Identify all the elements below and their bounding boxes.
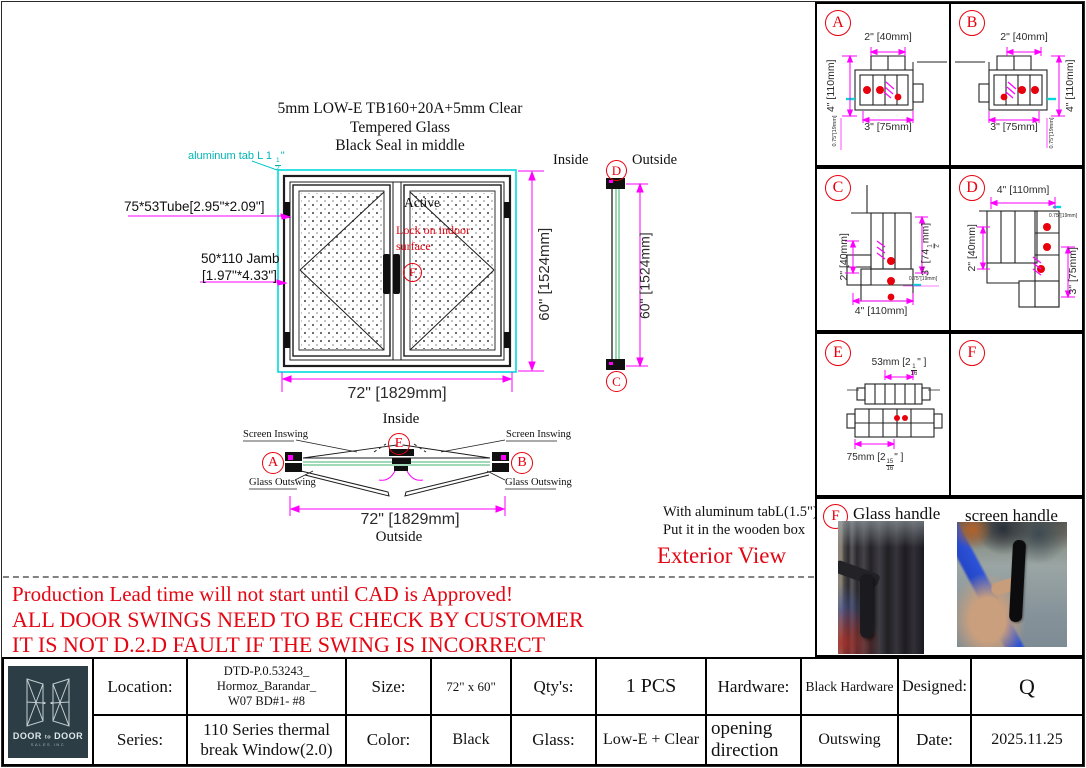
logo-doors-icon — [20, 676, 76, 728]
detail-a-dim-small: 0.75"[19mm] — [832, 113, 838, 149]
jamb-label-line1: 50*110 Jamb — [201, 251, 280, 267]
series-label: Series: — [92, 714, 186, 764]
left-sash-mesh — [301, 193, 383, 349]
glass-handle-photo — [838, 521, 924, 654]
detail-c-dim-bottom: 4" [110mm] — [850, 306, 912, 318]
opening-direction-label: opening direction — [705, 714, 800, 764]
exterior-view-title: Exterior View — [657, 543, 786, 569]
active-sash-label: Active — [404, 195, 440, 211]
side-outside-label: Outside — [632, 152, 677, 169]
plan-marker-e: E — [388, 433, 410, 455]
detail-a-dim-bottom: 3" [75mm] — [857, 122, 919, 134]
series-value: 110 Series thermal break Window(2.0) — [186, 714, 345, 764]
detail-cell-e: E 53mm [2116" ] 75mm [21516" ] — [815, 332, 951, 497]
qty-label: Qty's: — [510, 659, 595, 714]
glass-label: Glass: — [510, 714, 595, 764]
detail-b-dim-bottom: 3" [75mm] — [983, 122, 1045, 134]
logo-subtitle: SALES INC — [31, 742, 65, 747]
glass-spec-line1: 5mm LOW-E TB160+20A+5mm Clear — [270, 100, 530, 118]
plan-marker-b: B — [511, 452, 533, 474]
qty-value: 1 PCS — [595, 659, 705, 714]
opening-line2: direction — [711, 740, 779, 762]
detail-cell-c: C 2" [40mm] 3" [7412mm] 4" [110mm] 0.75"… — [815, 167, 951, 332]
plan-width-dim: 72" [1829mm] — [355, 511, 465, 529]
detail-a-dim-top: 2" [40mm] — [857, 32, 919, 44]
detail-marker-f: F — [959, 340, 985, 366]
color-value: Black — [430, 714, 510, 764]
side-marker-d: D — [606, 160, 627, 181]
elevation-height-dim: 60" [1524mm] — [537, 219, 554, 329]
date-label: Date: — [897, 714, 970, 764]
packing-note-line2: Put it in the wooden box — [663, 522, 805, 539]
detail-d-dim-right: 3" [75mm] — [1068, 240, 1080, 302]
cad-drawing-page: 5mm LOW-E TB160+20A+5mm Clear Tempered G… — [0, 0, 1086, 768]
hardware-value: Black Hardware — [800, 659, 897, 714]
elevation-marker-f: F — [403, 263, 422, 282]
screen-handle-shape — [1009, 540, 1026, 623]
warning-line2: ALL DOOR SWINGS NEED TO BE CHECK BY CUST… — [12, 607, 814, 632]
screen-inswing-left: Screen Inswing — [243, 429, 308, 441]
size-label: Size: — [345, 659, 430, 714]
detail-d-dim-top: 4" [110mm] — [992, 185, 1054, 197]
glass-value: Low-E + Clear — [595, 714, 705, 764]
right-sash-mesh — [412, 193, 494, 349]
detail-e-dim-top: 53mm [2116" ] — [849, 357, 949, 377]
detail-d-dim-small: 0.75"[19mm] — [1043, 214, 1083, 220]
location-line2: Hormoz_Barandar_ — [217, 679, 316, 694]
detail-cell-a: A 2" [40mm] 4" [110mm] 3" [75mm] 0.75"[1… — [815, 2, 951, 167]
plan-outside-label: Outside — [364, 529, 434, 546]
production-warning: Production Lead time will not start unti… — [3, 576, 814, 655]
packing-note-line1: With aluminum tabL(1.5"). — [663, 504, 821, 521]
designed-label: Designed: — [897, 659, 970, 714]
detail-c-dim-right: 3" [7412mm] — [921, 216, 942, 282]
lock-note-line2: surface — [396, 240, 431, 254]
series-line1: 110 Series thermal — [203, 720, 330, 740]
lock-note-line1: Lock on indoor — [396, 224, 470, 238]
warning-line1: Production Lead time will not start unti… — [12, 582, 814, 607]
elevation-width-dim: 72" [1829mm] — [342, 385, 452, 403]
detail-cell-f: F — [949, 332, 1084, 497]
detail-a-dim-left: 4" [110mm] — [826, 55, 838, 117]
location-label: Location: — [92, 659, 186, 714]
side-height-dim: 60" [1524mm] — [637, 221, 652, 331]
hardware-label: Hardware: — [705, 659, 800, 714]
side-inside-label: Inside — [553, 152, 588, 169]
detail-cell-d: D 4" [110mm] 2" [40mm] 3" [75mm] 0.75"[1… — [949, 167, 1084, 332]
size-value: 72" x 60" — [430, 659, 510, 714]
title-block: DOOR to DOOR SALES INC Location: DTD-P.0… — [2, 657, 1084, 766]
company-logo: DOOR to DOOR SALES INC — [8, 666, 88, 758]
detail-b-dim-top: 2" [40mm] — [993, 32, 1055, 44]
plan-inside-label: Inside — [371, 411, 431, 428]
detail-c-dim-small: 0.75"[19mm] — [903, 277, 943, 283]
warning-line3: IT IS NOT D.2.D FAULT IF THE SWING IS IN… — [12, 632, 814, 657]
location-line1: DTD-P.0.53243_ — [224, 664, 309, 679]
detail-c-dim-left: 2" [40mm] — [839, 226, 851, 288]
date-value: 2025.11.25 — [970, 714, 1082, 764]
color-label: Color: — [345, 714, 430, 764]
screen-inswing-right: Screen Inswing — [506, 429, 571, 441]
tube-label: 75*53Tube[2.95"*2.09"] — [124, 199, 264, 215]
series-line2: break Window(2.0) — [200, 740, 332, 760]
glass-outswing-left: Glass Outswing — [249, 477, 316, 489]
glass-outswing-right: Glass Outswing — [505, 477, 572, 489]
glass-spec-line3: Black Seal in middle — [270, 137, 530, 155]
designed-value: Q — [970, 659, 1082, 714]
logo-cell: DOOR to DOOR SALES INC — [4, 659, 92, 764]
location-value: DTD-P.0.53243_ Hormoz_Barandar_ W07 BD#1… — [186, 659, 345, 714]
jamb-label-line2: [1.97"*4.33"] — [202, 268, 277, 284]
detail-cell-b: B 2" [40mm] 4" [110mm] 3" [75mm] 0.75"[1… — [949, 2, 1084, 167]
detail-b-section — [951, 4, 1082, 165]
location-line3: W07 BD#1- #8 — [228, 694, 305, 709]
detail-b-dim-right: 4" [110mm] — [1065, 55, 1077, 117]
screen-handle-photo — [957, 522, 1067, 647]
logo-brand-text: DOOR to DOOR — [13, 731, 83, 741]
glass-handle-grip — [860, 574, 873, 638]
plan-marker-a: A — [262, 452, 284, 474]
detail-d-dim-left: 2" [40mm] — [967, 217, 979, 279]
detail-e-dim-bottom: 75mm [21516" ] — [825, 452, 925, 472]
opening-line1: opening — [711, 718, 772, 740]
opening-direction-value: Outswing — [800, 714, 897, 764]
aluminum-tab-note: aluminum tab L 1 12" — [188, 150, 285, 172]
side-marker-c: C — [606, 371, 627, 392]
detail-b-dim-small: 0.75"[19mm] — [1049, 115, 1055, 151]
glass-spec-line2: Tempered Glass — [270, 119, 530, 137]
